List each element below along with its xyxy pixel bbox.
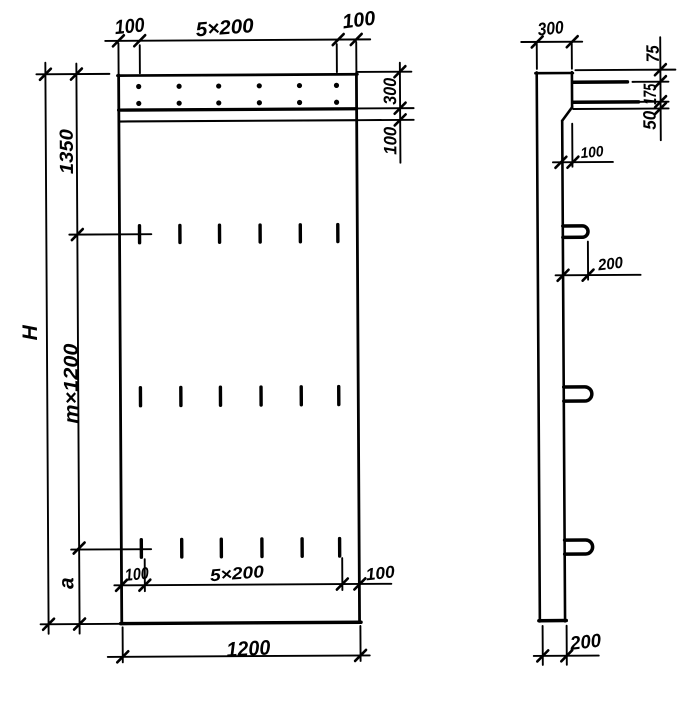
svg-text:200: 200 <box>596 255 624 275</box>
svg-text:5×200: 5×200 <box>195 15 254 41</box>
svg-text:75: 75 <box>643 44 663 62</box>
svg-text:100: 100 <box>124 564 150 585</box>
svg-text:175: 175 <box>640 83 660 105</box>
svg-text:100: 100 <box>380 127 400 155</box>
svg-text:200: 200 <box>568 630 603 654</box>
svg-text:300: 300 <box>380 78 400 105</box>
svg-text:100: 100 <box>580 143 605 162</box>
svg-text:1200: 1200 <box>226 636 272 662</box>
svg-text:50: 50 <box>640 111 660 130</box>
svg-text:100: 100 <box>341 7 377 33</box>
svg-text:300: 300 <box>537 17 565 39</box>
svg-text:1350: 1350 <box>57 129 78 175</box>
svg-text:100: 100 <box>114 14 146 39</box>
svg-text:5×200: 5×200 <box>209 562 265 585</box>
svg-text:a: a <box>55 577 78 589</box>
svg-text:m×1200: m×1200 <box>60 344 82 424</box>
svg-text:100: 100 <box>365 562 396 584</box>
svg-text:H: H <box>19 324 42 340</box>
